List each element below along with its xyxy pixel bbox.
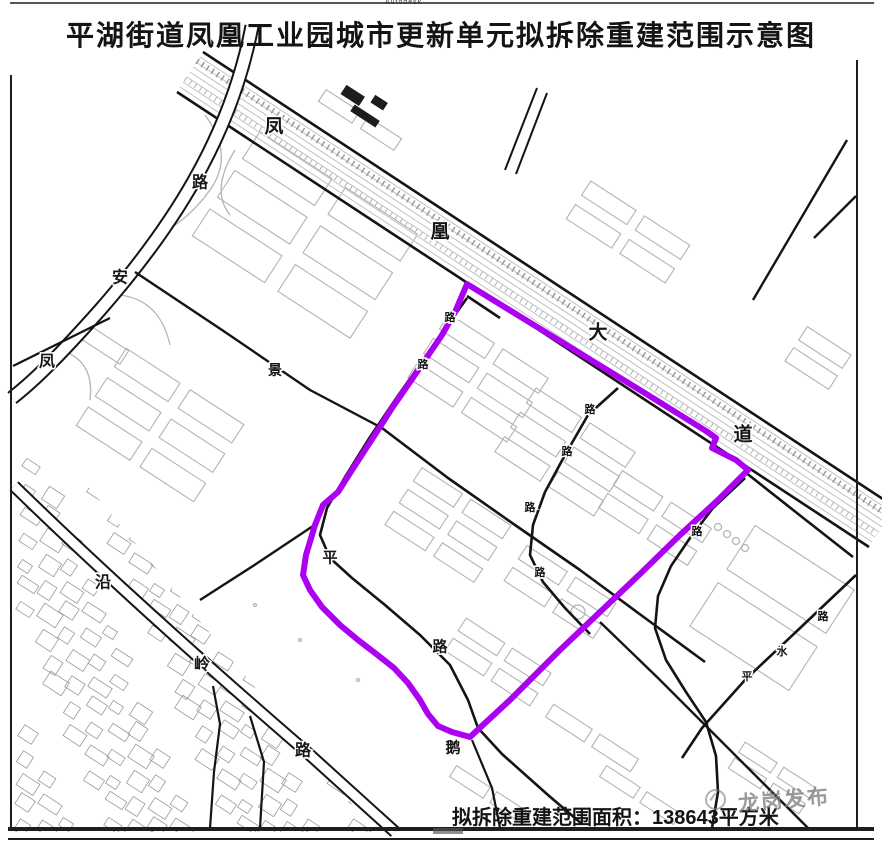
village-building xyxy=(365,483,382,500)
village-building xyxy=(373,748,388,762)
village-building xyxy=(192,606,216,628)
village-building xyxy=(192,583,209,600)
village-building xyxy=(86,696,107,715)
village-building xyxy=(235,649,250,663)
village-building xyxy=(239,534,256,551)
road-label-大: 大 xyxy=(588,321,607,344)
village-building xyxy=(126,770,149,792)
village-building xyxy=(41,486,64,508)
village-building xyxy=(60,559,77,576)
village-building xyxy=(172,529,192,549)
village-building xyxy=(167,653,190,675)
village-building xyxy=(307,719,334,744)
map-canvas: 凤凰大道路安凤沿岭路平路鹅景路路路路路路路路水平 平湖街道凤凰工业园城市更新单元… xyxy=(0,0,882,842)
building xyxy=(566,204,621,248)
dark-buildings xyxy=(341,85,388,128)
village-building xyxy=(170,578,193,600)
building xyxy=(95,378,161,431)
village-building xyxy=(169,604,189,624)
building-block xyxy=(785,327,851,390)
village-building xyxy=(110,458,134,480)
building xyxy=(491,668,538,706)
village-building xyxy=(326,581,346,601)
building-block xyxy=(690,526,854,691)
road-label-水: 水 xyxy=(777,644,789,658)
village-building xyxy=(35,629,58,651)
village-building xyxy=(109,700,124,714)
village-building xyxy=(344,676,365,695)
building xyxy=(114,348,180,401)
railway-hatch-2 xyxy=(185,79,877,534)
road-label-路: 路 xyxy=(418,357,430,371)
building xyxy=(413,468,462,508)
building xyxy=(140,448,206,501)
building-block xyxy=(445,618,551,706)
building-block xyxy=(408,314,548,442)
village-building xyxy=(372,771,394,789)
village-building xyxy=(350,744,371,763)
building xyxy=(785,348,837,390)
village-building xyxy=(280,649,298,665)
village-building xyxy=(352,702,370,719)
building xyxy=(592,734,639,772)
building xyxy=(600,766,641,799)
village-building xyxy=(220,701,244,722)
village-building xyxy=(301,651,328,676)
village-building xyxy=(239,773,257,789)
road-label-凤: 凤 xyxy=(39,353,55,371)
village-building xyxy=(38,771,56,788)
building-block xyxy=(546,704,639,772)
road-label-平: 平 xyxy=(322,550,337,567)
building xyxy=(546,704,593,742)
building xyxy=(278,265,368,339)
village-building xyxy=(264,509,288,530)
building xyxy=(217,170,307,244)
building xyxy=(495,437,550,482)
buildings-layer xyxy=(76,90,854,825)
village-building xyxy=(130,504,151,523)
village-building xyxy=(261,554,279,571)
building xyxy=(399,489,448,529)
village-building xyxy=(154,482,172,498)
village-building xyxy=(38,554,61,576)
village-building xyxy=(351,527,378,552)
road-label-路: 路 xyxy=(585,402,597,416)
village-building xyxy=(16,751,33,768)
village-building xyxy=(367,457,387,477)
village-building xyxy=(214,626,238,647)
village-building xyxy=(264,486,282,503)
map-svg: 凤凰大道路安凤沿岭路平路鹅景路路路路路路路路水平 xyxy=(0,0,882,842)
building-block xyxy=(385,468,511,583)
village-building xyxy=(104,817,122,833)
autodesk-stamp: Autodesk xyxy=(385,0,422,6)
village-building xyxy=(324,630,348,652)
building xyxy=(728,758,766,789)
village-building xyxy=(82,602,106,623)
building xyxy=(526,388,581,433)
village-building xyxy=(151,557,169,573)
village-building xyxy=(107,533,131,555)
village-building xyxy=(17,575,39,593)
building xyxy=(662,502,712,542)
building xyxy=(690,583,817,691)
building xyxy=(434,543,483,583)
building xyxy=(178,390,244,443)
village-building xyxy=(241,508,261,528)
building xyxy=(385,511,434,551)
road-jing xyxy=(135,272,382,428)
village-building xyxy=(108,723,130,741)
building xyxy=(548,471,603,516)
village-building xyxy=(286,506,304,522)
road-label-路: 路 xyxy=(818,609,830,623)
building xyxy=(567,577,616,617)
village-building xyxy=(371,581,395,603)
village-building xyxy=(329,724,349,744)
village-building xyxy=(43,671,70,696)
road-label-岭: 岭 xyxy=(194,655,210,674)
village-building xyxy=(87,463,107,483)
village-building xyxy=(243,672,265,690)
area-caption: 拟拆除重建范围面积：138643平方米 xyxy=(452,801,779,830)
village-building xyxy=(211,461,234,483)
road-label-路: 路 xyxy=(295,741,312,760)
village-building xyxy=(280,799,297,816)
village-building xyxy=(155,456,177,474)
village-building xyxy=(18,559,33,573)
village-building xyxy=(287,480,309,498)
village-building xyxy=(279,457,294,471)
village-building xyxy=(103,625,118,639)
village-building xyxy=(283,581,301,597)
village-building xyxy=(85,745,109,766)
village-building xyxy=(307,703,327,723)
village-building xyxy=(373,532,393,552)
building-block xyxy=(566,181,689,283)
village-building xyxy=(37,603,64,628)
village-building xyxy=(63,725,87,747)
building xyxy=(76,407,142,460)
building xyxy=(461,397,516,442)
road-stub-2 xyxy=(516,93,547,174)
road-ne-2 xyxy=(814,196,856,238)
village-building xyxy=(242,482,266,504)
village-building xyxy=(37,580,57,600)
village-building xyxy=(217,769,241,790)
village-building xyxy=(88,654,106,671)
road-label-景: 景 xyxy=(268,362,282,378)
village-building xyxy=(175,695,202,720)
road-label-路: 路 xyxy=(192,173,209,192)
village-building xyxy=(148,798,172,820)
road-sw-branch xyxy=(200,524,316,600)
road-label-路: 路 xyxy=(525,500,537,514)
village-building xyxy=(261,577,285,598)
village-building xyxy=(219,503,246,528)
building-block xyxy=(504,546,616,639)
road-label-路: 路 xyxy=(432,638,448,656)
building-block xyxy=(76,348,244,501)
village-building xyxy=(18,725,38,745)
village-building xyxy=(85,722,103,739)
building xyxy=(580,423,635,468)
village-building xyxy=(195,726,212,743)
village-building xyxy=(16,774,40,796)
village-building xyxy=(259,603,280,622)
village-building xyxy=(173,510,196,532)
village-building xyxy=(170,795,188,812)
village-building xyxy=(109,484,129,504)
village-building xyxy=(19,533,37,549)
road-label-道: 道 xyxy=(733,423,752,446)
building xyxy=(564,447,619,492)
village-building xyxy=(330,698,354,720)
road-label-凤: 凤 xyxy=(264,116,283,138)
village-building xyxy=(125,796,145,816)
village-building xyxy=(148,775,165,792)
building xyxy=(360,117,401,151)
village-building xyxy=(240,747,262,765)
village-building xyxy=(323,649,343,669)
watermark-logo-icon xyxy=(705,789,726,810)
village-building xyxy=(66,650,90,672)
road-label-凰: 凰 xyxy=(430,221,449,243)
village-building xyxy=(321,675,338,692)
road-label-路: 路 xyxy=(692,524,704,538)
village-building xyxy=(105,791,127,809)
village-building xyxy=(238,799,253,813)
village-building xyxy=(215,795,236,814)
building xyxy=(303,226,393,300)
village-building xyxy=(22,458,40,474)
building xyxy=(635,216,690,260)
village-building xyxy=(282,607,297,621)
village-building xyxy=(147,817,167,837)
village-building xyxy=(83,771,104,790)
building xyxy=(192,209,282,283)
village-building xyxy=(63,702,80,719)
village-building xyxy=(129,553,153,574)
village-building xyxy=(88,677,112,698)
road-label-平: 平 xyxy=(742,670,753,683)
road-block-edge xyxy=(745,472,853,557)
village-building xyxy=(371,558,388,575)
village-building xyxy=(15,793,35,813)
railway-hatch xyxy=(197,61,882,516)
village-building xyxy=(153,508,168,522)
village-building xyxy=(346,650,370,671)
building xyxy=(582,181,637,225)
building xyxy=(739,742,777,773)
village-building xyxy=(233,459,250,476)
village-building xyxy=(375,696,397,714)
building xyxy=(458,618,505,656)
village-building xyxy=(132,485,156,506)
village-building xyxy=(80,628,101,647)
building xyxy=(799,327,851,369)
village-building xyxy=(150,583,165,597)
village-building xyxy=(111,648,133,666)
village-building xyxy=(299,677,322,699)
village-building xyxy=(16,601,34,617)
village-building xyxy=(324,457,342,473)
village-building xyxy=(60,582,84,604)
village-building xyxy=(129,702,152,724)
road-village-2 xyxy=(250,716,264,828)
road-label-沿: 沿 xyxy=(95,574,111,592)
village-building xyxy=(219,487,239,507)
page-title: 平湖街道凤凰工业园城市更新单元拟拆除重建范围示意图 xyxy=(0,14,882,54)
village-building xyxy=(57,627,74,644)
village-building xyxy=(262,528,283,547)
village-building xyxy=(351,511,371,531)
village-building xyxy=(129,530,147,547)
village-building xyxy=(172,552,199,577)
road-label-路: 路 xyxy=(562,444,574,458)
village-building xyxy=(152,531,174,549)
village-building xyxy=(352,725,376,746)
road-label-安: 安 xyxy=(112,268,128,287)
village-building xyxy=(343,485,366,507)
village-building xyxy=(214,603,232,620)
village-building xyxy=(107,749,125,765)
village-building xyxy=(38,794,62,815)
village-building xyxy=(217,746,235,763)
village-building xyxy=(87,479,114,504)
road-label-鹅: 鹅 xyxy=(445,739,460,757)
village-building xyxy=(256,460,277,479)
village-building xyxy=(301,628,321,648)
village-building xyxy=(107,510,124,527)
village-building xyxy=(110,674,128,690)
road-label-路: 路 xyxy=(445,310,457,324)
building xyxy=(511,412,566,457)
building xyxy=(493,349,548,394)
building xyxy=(448,521,497,561)
building xyxy=(620,239,675,283)
building xyxy=(613,471,663,511)
village-building xyxy=(367,673,382,687)
village-building xyxy=(194,557,214,577)
building xyxy=(477,373,532,418)
village-building xyxy=(128,744,155,769)
village-building xyxy=(106,775,121,789)
microtext-smudge xyxy=(433,828,463,834)
road-label-路: 路 xyxy=(535,565,547,579)
building xyxy=(159,419,225,472)
building xyxy=(599,493,649,533)
village-building xyxy=(218,720,239,739)
village-building xyxy=(374,722,392,738)
